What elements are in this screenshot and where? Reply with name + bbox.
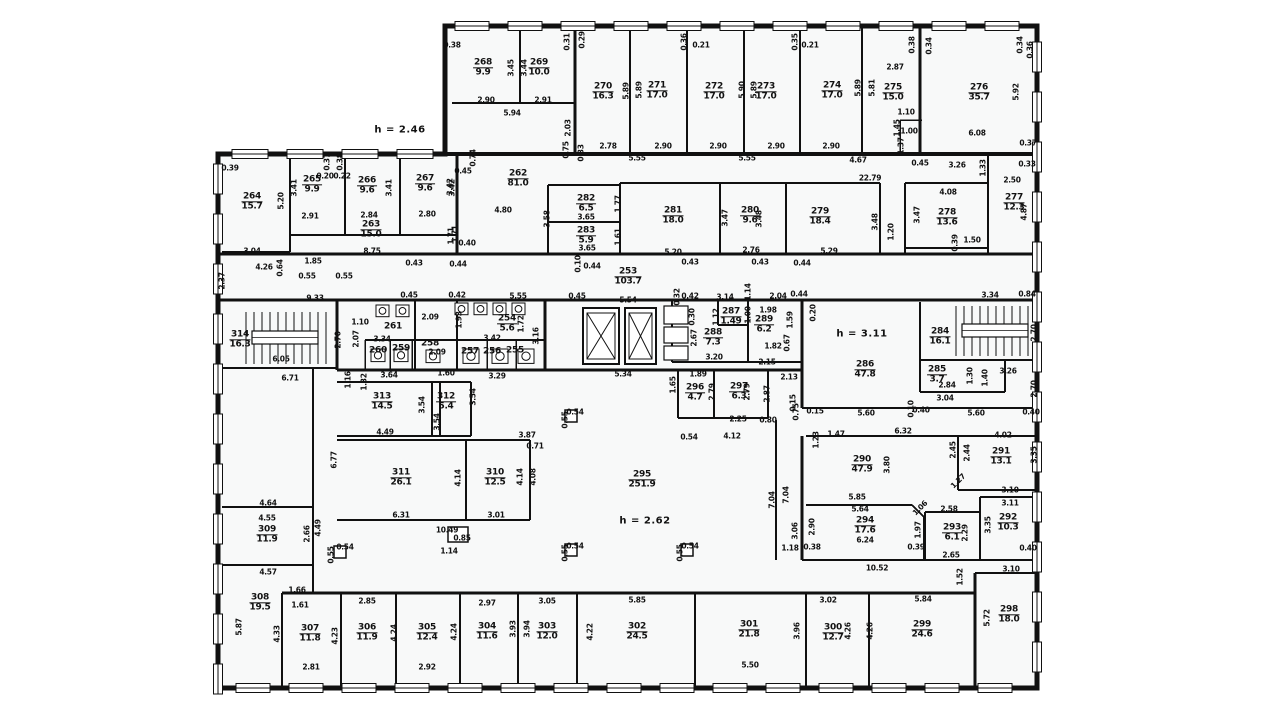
dimension-label: 0.38	[336, 153, 345, 170]
dimension-label: 5.60	[857, 409, 874, 418]
dimension-label: 5.72	[983, 609, 992, 626]
dimension-label: 0.42	[681, 292, 698, 301]
room-area: 47.8	[854, 371, 875, 380]
room-label-253: 253103.7	[615, 267, 642, 286]
dimension-label: 4.64	[259, 499, 276, 508]
dimension-label: 2.58	[940, 505, 957, 514]
dimension-label: 6.71	[281, 374, 298, 383]
dimension-label: 4.24	[450, 623, 459, 640]
room-label-314: 31416.3	[229, 330, 250, 349]
dimension-label: 4.80	[494, 206, 511, 215]
dimension-label: 4.14	[454, 469, 463, 486]
dimension-label: 3.29	[488, 372, 505, 381]
dimension-label: 3.65	[577, 213, 594, 222]
dimension-label: 5.89	[854, 79, 863, 96]
dimension-label: 6.77	[330, 451, 339, 468]
dimension-label: 2.80	[418, 210, 435, 219]
ceiling-height-note: h = 3.11	[836, 329, 887, 340]
ceiling-height-note: h = 2.46	[374, 125, 425, 136]
dimension-label: 3.35	[1030, 446, 1039, 463]
room-label-267: 2679.6	[415, 174, 435, 193]
dimension-label: 1.14	[440, 547, 457, 556]
dimension-label: 5.20	[664, 248, 681, 257]
room-label-282: 2826.5	[576, 194, 596, 213]
room-area: 18.4	[809, 218, 830, 227]
dimension-label: 2.03	[564, 119, 573, 136]
room-area: 26.1	[390, 479, 411, 488]
room-area: 11.9	[356, 634, 377, 643]
dimension-label: 2.87	[763, 385, 772, 402]
dimension-label: 3.42	[483, 334, 500, 343]
dimension-label: 0.15	[789, 394, 798, 411]
room-area: 17.6	[854, 527, 875, 536]
dimension-label: 3.41	[385, 179, 394, 196]
dimension-label: 0.40	[458, 239, 475, 248]
dimension-label: 2.90	[654, 142, 671, 151]
dimension-label: 0.35	[791, 33, 800, 50]
dimension-label: 0.45	[568, 292, 585, 301]
dimension-label: 1.77	[614, 195, 623, 212]
dimension-label: 3.34	[981, 291, 998, 300]
room-number: 257	[460, 347, 480, 356]
room-label-259: 259	[391, 344, 411, 353]
room-label-295: 295251.9	[629, 470, 656, 489]
room-area: 6.1	[942, 534, 962, 543]
dimension-label: 0.34	[1016, 36, 1025, 53]
room-area: 5.6	[497, 325, 517, 334]
room-label-304: 30411.6	[476, 622, 497, 641]
dimension-label: 3.48	[755, 210, 764, 227]
dimension-label: 3.35	[984, 516, 993, 533]
dimension-label: 2.70	[1030, 324, 1039, 341]
dimension-label: 0.38	[803, 543, 820, 552]
dimension-label: 5.85	[628, 596, 645, 605]
room-label-307: 30711.8	[299, 624, 320, 643]
room-label-310: 31012.5	[484, 468, 505, 487]
room-area: 10.3	[997, 524, 1018, 533]
room-label-272: 27217.0	[703, 82, 724, 101]
dimension-label: 0.21	[801, 41, 818, 50]
dimension-label: 2.90	[822, 142, 839, 151]
room-label-260: 260	[368, 346, 388, 355]
dimension-label: 1.61	[614, 228, 623, 245]
room-label-302: 30224.5	[626, 622, 647, 641]
room-label-273: 27317.0	[755, 82, 776, 101]
dimension-label: 0.84	[1018, 290, 1035, 299]
dimension-label: 4.67	[849, 156, 866, 165]
dimension-label: 2.50	[1003, 176, 1020, 185]
dimension-label: 3.05	[538, 597, 555, 606]
labels-layer: 2689.926910.027016.327117.027217.027317.…	[0, 0, 1280, 720]
room-area: 9.9	[473, 69, 493, 78]
dimension-label: 2.76	[742, 246, 759, 255]
room-area: 11.8	[299, 635, 320, 644]
dimension-label: 1.00	[744, 306, 753, 323]
dimension-label: 8.75	[363, 247, 380, 256]
dimension-label: 1.66	[288, 586, 305, 595]
dimension-label: 5.64	[851, 505, 868, 514]
dimension-label: 0.37	[1019, 139, 1036, 148]
dimension-label: 1.93	[455, 311, 464, 328]
dimension-label: 2.84	[938, 381, 955, 390]
room-area: 17.0	[755, 93, 776, 102]
room-label-292: 29210.3	[997, 513, 1018, 532]
room-area: 47.9	[851, 466, 872, 475]
dimension-label: 4.26	[844, 622, 853, 639]
dimension-label: 3.54	[469, 388, 478, 405]
room-area: 18.0	[998, 616, 1019, 625]
dimension-label: 4.22	[586, 623, 595, 640]
dimension-label: 0.38	[908, 36, 917, 53]
dimension-label: 3.47	[721, 209, 730, 226]
dimension-label: 0.55	[298, 272, 315, 281]
room-area: 17.0	[646, 92, 667, 101]
room-label-300: 30012.7	[822, 623, 843, 642]
dimension-label: 0.45	[454, 167, 471, 176]
dimension-label: 1.71	[447, 227, 456, 244]
dimension-label: 1.98	[759, 306, 776, 315]
room-area: 7.3	[703, 339, 723, 348]
dimension-label: 5.55	[628, 154, 645, 163]
room-area: 14.5	[371, 403, 392, 412]
dimension-label: 5.55	[509, 292, 526, 301]
ceiling-height-note: h = 2.62	[619, 516, 670, 527]
dimension-label: 0.20	[316, 172, 333, 181]
dimension-label: 3.16	[532, 327, 541, 344]
room-area: 13.6	[936, 219, 957, 228]
room-label-312: 3125.4	[436, 392, 456, 411]
room-area: 12.0	[536, 633, 557, 642]
dimension-label: 6.32	[894, 427, 911, 436]
dimension-label: 3.01	[487, 511, 504, 520]
dimension-label: 3.54	[433, 413, 442, 430]
dimension-label: 0.55	[335, 272, 352, 281]
room-label-306: 30611.9	[356, 623, 377, 642]
dimension-label: 2.90	[709, 142, 726, 151]
room-area: 17.0	[703, 93, 724, 102]
dimension-label: 4.87	[1020, 203, 1029, 220]
dimension-label: 0.42	[448, 291, 465, 300]
dimension-label: 1.00	[900, 127, 917, 136]
dimension-label: 2.79	[743, 383, 752, 400]
dimension-label: 0.20	[809, 304, 818, 321]
room-label-287: 2871.49	[720, 307, 741, 326]
dimension-label: 2.09	[421, 313, 438, 322]
room-area: 81.0	[507, 180, 528, 189]
dimension-label: 0.40	[1019, 544, 1036, 553]
room-label-299: 29924.6	[911, 620, 932, 639]
dimension-label: 3.41	[290, 179, 299, 196]
dimension-label: 0.40	[1022, 408, 1039, 417]
dimension-label: 0.80	[759, 416, 776, 425]
dimension-label: 0.45	[400, 291, 417, 300]
dimension-label: 2.67	[690, 329, 699, 346]
dimension-label: 4.14	[516, 468, 525, 485]
dimension-label: 2.13	[780, 373, 797, 382]
room-label-270: 27016.3	[592, 82, 613, 101]
dimension-label: 3.58	[543, 210, 552, 227]
dimension-label: 3.26	[999, 367, 1016, 376]
dimension-label: 5.89	[622, 82, 631, 99]
room-label-313: 31314.5	[371, 392, 392, 411]
dimension-label: 0.36	[680, 33, 689, 50]
room-label-296: 2964.7	[685, 383, 705, 402]
dimension-label: 1.40	[981, 369, 990, 386]
dimension-label: 2.04	[769, 292, 786, 301]
dimension-label: 9.33	[306, 294, 323, 303]
room-label-266: 2669.6	[357, 176, 377, 195]
room-label-284: 28416.1	[929, 327, 950, 346]
room-area: 9.6	[357, 187, 377, 196]
dimension-label: 2.90	[767, 142, 784, 151]
dimension-label: 1.23	[812, 431, 821, 448]
dimension-label: 4.26	[866, 622, 875, 639]
dimension-label: 2.85	[358, 597, 375, 606]
dimension-label: 5.92	[1012, 83, 1021, 100]
room-label-286: 28647.8	[854, 360, 875, 379]
room-label-271: 27117.0	[646, 81, 667, 100]
room-label-309: 30911.9	[256, 525, 277, 544]
dimension-label: 0.74	[469, 149, 478, 166]
room-area: 11.6	[476, 633, 497, 642]
dimension-label: 3.42	[446, 178, 455, 195]
room-area: 15.7	[241, 203, 262, 212]
dimension-label: 6.05	[272, 355, 289, 364]
room-area: 35.7	[968, 94, 989, 103]
dimension-label: 3.11	[1001, 499, 1018, 508]
dimension-label: 22.79	[859, 174, 881, 183]
dimension-label: 2.84	[360, 211, 377, 220]
dimension-label: 7.04	[768, 491, 777, 508]
room-area: 24.6	[911, 631, 932, 640]
dimension-label: 0.21	[692, 41, 709, 50]
dimension-label: 5.55	[738, 154, 755, 163]
room-number: 255	[505, 346, 525, 355]
room-label-308: 30819.5	[249, 593, 270, 612]
room-area: 5.4	[436, 403, 456, 412]
room-label-274: 27417.0	[821, 81, 842, 100]
room-area: 17.0	[821, 92, 842, 101]
dimension-label: 1.18	[781, 544, 798, 553]
dimension-label: 1.72	[517, 315, 526, 332]
dimension-label: 5.87	[235, 618, 244, 635]
dimension-label: 1.32	[360, 373, 369, 390]
room-number: 259	[391, 344, 411, 353]
dimension-label: 2.81	[302, 663, 319, 672]
room-area: 16.3	[592, 93, 613, 102]
room-label-276: 27635.7	[968, 83, 989, 102]
dimension-label: 6.31	[392, 511, 409, 520]
room-area: 12.4	[416, 634, 437, 643]
dimension-label: 3.80	[883, 456, 892, 473]
dimension-label: 0.55	[676, 544, 685, 561]
dimension-label: 0.34	[925, 37, 934, 54]
room-label-293: 2936.1	[942, 523, 962, 542]
dimension-label: 5.29	[820, 247, 837, 256]
dimension-label: 7.04	[782, 486, 791, 503]
dimension-label: 0.32	[673, 288, 682, 305]
floor-plan: 2689.926910.027016.327117.027217.027317.…	[0, 0, 1280, 720]
dimension-label: 1.59	[786, 311, 795, 328]
dimension-label: 1.60	[437, 369, 454, 378]
room-label-291: 29113.1	[990, 447, 1011, 466]
dimension-label: 0.39	[221, 164, 238, 173]
dimension-label: 2.92	[418, 663, 435, 672]
dimension-label: 0.55	[327, 546, 336, 563]
dimension-label: 2.44	[963, 444, 972, 461]
room-area: 10.0	[528, 69, 549, 78]
dimension-label: 4.02	[994, 431, 1011, 440]
dimension-label: 0.40	[912, 406, 929, 415]
dimension-label: 0.85	[453, 534, 470, 543]
dimension-label: 0.75	[562, 141, 571, 158]
dimension-label: 1.06	[911, 499, 930, 518]
dimension-label: 0.39	[907, 543, 924, 552]
dimension-label: 4.49	[376, 428, 393, 437]
dimension-label: 0.38	[443, 41, 460, 50]
room-label-298: 29818.0	[998, 605, 1019, 624]
dimension-label: 5.34	[614, 370, 631, 379]
room-area: 11.9	[256, 536, 277, 545]
dimension-label: 0.44	[790, 290, 807, 299]
dimension-label: 3.02	[819, 596, 836, 605]
dimension-label: 2.70	[1030, 380, 1039, 397]
dimension-label: 3.47	[913, 206, 922, 223]
room-area: 16.3	[229, 341, 250, 350]
dimension-label: 0.71	[526, 442, 543, 451]
dimension-label: 0.43	[751, 258, 768, 267]
dimension-label: 2.07	[352, 330, 361, 347]
dimension-label: 3.14	[716, 293, 733, 302]
room-label-275: 27515.0	[882, 83, 903, 102]
dimension-label: 1.97	[914, 521, 923, 538]
dimension-label: 6.08	[968, 129, 985, 138]
dimension-label: 1.82	[764, 342, 781, 351]
room-number: 261	[383, 322, 403, 331]
room-label-262: 26281.0	[507, 169, 528, 188]
dimension-label: 3.45	[507, 59, 516, 76]
dimension-label: 1.10	[351, 318, 368, 327]
dimension-label: 0.67	[783, 334, 792, 351]
room-label-290: 29047.9	[851, 455, 872, 474]
dimension-label: 5.50	[741, 661, 758, 670]
room-area: 13.1	[990, 458, 1011, 467]
dimension-label: 2.45	[949, 441, 958, 458]
dimension-label: 4.12	[723, 432, 740, 441]
room-area: 103.7	[615, 278, 642, 287]
dimension-label: 1.27	[949, 472, 968, 491]
dimension-label: 5.85	[848, 493, 865, 502]
room-label-281: 28118.0	[662, 206, 683, 225]
dimension-label: 1.52	[956, 568, 965, 585]
dimension-label: 5.94	[503, 109, 520, 118]
room-area: 21.8	[738, 631, 759, 640]
dimension-label: 1.47	[827, 430, 844, 439]
room-label-268: 2689.9	[473, 58, 493, 77]
dimension-label: 0.33	[1018, 160, 1035, 169]
dimension-label: 2.29	[961, 524, 970, 541]
dimension-label: 0.22	[333, 172, 350, 181]
dimension-label: 0.43	[405, 259, 422, 268]
dimension-label: 5.90	[738, 81, 747, 98]
dimension-label: 2.15	[758, 358, 775, 367]
room-area: 18.0	[662, 217, 683, 226]
room-area: 251.9	[629, 481, 656, 490]
dimension-label: 0.10	[574, 255, 583, 272]
room-label-256: 256	[482, 347, 502, 356]
dimension-label: 5.54	[619, 296, 636, 305]
dimension-label: 0.29	[578, 31, 587, 48]
dimension-label: 3.65	[578, 244, 595, 253]
dimension-label: 3.20	[705, 353, 722, 362]
dimension-label: 0.15	[806, 407, 823, 416]
dimension-label: 1.20	[887, 223, 896, 240]
dimension-label: 2.70	[334, 331, 343, 348]
dimension-label: 4.33	[273, 625, 282, 642]
room-area: 1.49	[720, 318, 741, 327]
dimension-label: 0.55	[561, 544, 570, 561]
dimension-label: 4.08	[529, 468, 538, 485]
room-label-254: 2545.6	[497, 314, 517, 333]
room-label-311: 31126.1	[390, 468, 411, 487]
dimension-label: 1.10	[897, 108, 914, 117]
dimension-label: 6.24	[856, 536, 873, 545]
dimension-label: 3.04	[243, 247, 260, 256]
dimension-label: 0.54	[336, 543, 353, 552]
dimension-label: 3.06	[791, 522, 800, 539]
dimension-label: 2.66	[303, 525, 312, 542]
dimension-label: 2.97	[478, 599, 495, 608]
room-area: 6.2	[754, 326, 774, 335]
dimension-label: 3.64	[380, 371, 397, 380]
dimension-label: 4.26	[255, 263, 272, 272]
dimension-label: 1.33	[979, 159, 988, 176]
dimension-label: 2.37	[218, 272, 227, 289]
dimension-label: 0.36	[1026, 41, 1035, 58]
room-area: 15.0	[360, 231, 381, 240]
dimension-label: 1.89	[689, 370, 706, 379]
room-area: 12.7	[822, 634, 843, 643]
dimension-label: 2.90	[477, 96, 494, 105]
dimension-label: 3.94	[523, 620, 532, 637]
room-label-289: 2896.2	[754, 315, 774, 334]
room-label-305: 30512.4	[416, 623, 437, 642]
dimension-label: 3.44	[520, 59, 529, 76]
dimension-label: 4.23	[331, 627, 340, 644]
dimension-label: 1.16	[344, 371, 353, 388]
room-area: 12.5	[484, 479, 505, 488]
dimension-label: 2.65	[942, 551, 959, 560]
dimension-label: 4.08	[939, 188, 956, 197]
room-label-301: 30121.8	[738, 620, 759, 639]
room-number: 256	[482, 347, 502, 356]
dimension-label: 5.60	[967, 409, 984, 418]
dimension-label: 10.49	[436, 526, 458, 535]
dimension-label: 0.33	[577, 144, 586, 161]
dimension-label: 0.45	[911, 159, 928, 168]
dimension-label: 2.25	[729, 415, 746, 424]
dimension-label: 3.04	[936, 394, 953, 403]
room-label-303: 30312.0	[536, 622, 557, 641]
room-area: 9.6	[415, 185, 435, 194]
dimension-label: 3.26	[948, 161, 965, 170]
room-label-279: 27918.4	[809, 207, 830, 226]
room-label-288: 2887.3	[703, 328, 723, 347]
dimension-label: 4.49	[314, 519, 323, 536]
dimension-label: 5.81	[868, 79, 877, 96]
dimension-label: 4.57	[259, 568, 276, 577]
dimension-label: 0.37	[323, 153, 332, 170]
